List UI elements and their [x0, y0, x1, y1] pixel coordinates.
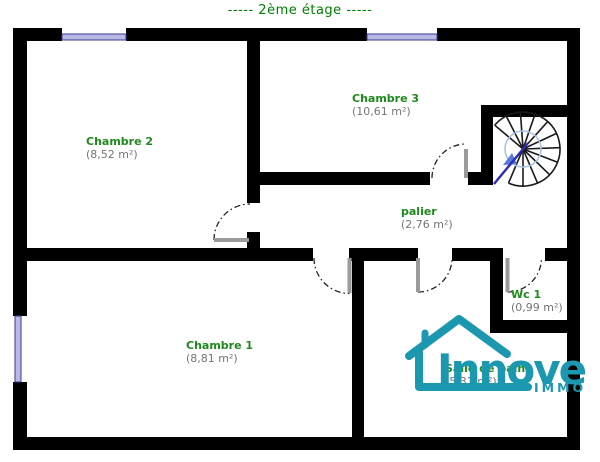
logo-sub-text: IMMO	[534, 380, 586, 395]
wall-corridor-d	[545, 248, 567, 261]
room-name: Chambre 3	[352, 92, 419, 105]
door-arc-sdb	[418, 258, 452, 292]
floor-title: ----- 2ème étage -----	[0, 3, 600, 18]
door-arc-wc	[508, 258, 542, 292]
room-area: (2,76 m²)	[401, 218, 453, 231]
window-chambre3	[367, 34, 437, 40]
wall-top-middle	[126, 28, 367, 41]
wall-corridor-a	[27, 248, 313, 261]
room-label-chambre3: Chambre 3 (10,61 m²)	[352, 92, 419, 118]
wall-bottom	[13, 437, 580, 450]
wall-left-lower	[13, 382, 27, 450]
room-name: Chambre 1	[186, 339, 253, 352]
spiral-staircase	[494, 112, 560, 186]
room-label-chambre2: Chambre 2 (8,52 m²)	[86, 135, 153, 161]
windows	[15, 34, 437, 382]
room-label-palier: palier (2,76 m²)	[401, 205, 453, 231]
room-label-chambre1: Chambre 1 (8,81 m²)	[186, 339, 253, 365]
room-name: palier	[401, 205, 453, 218]
wall-left-upper	[13, 28, 27, 316]
wall-chambre1-divider	[352, 252, 364, 443]
wall-chambre3-bottom-left	[247, 172, 430, 185]
room-area: (10,61 m²)	[352, 105, 419, 118]
window-chambre1	[15, 316, 21, 382]
room-area: (8,52 m²)	[86, 148, 153, 161]
wall-top-right	[437, 28, 580, 41]
logo-graphic: Innove IMMO	[395, 310, 600, 405]
window-chambre2	[62, 34, 126, 40]
door-arc-chambre1	[314, 258, 350, 294]
innove-immo-logo: Innove IMMO	[395, 310, 600, 405]
floorplan-canvas: ----- 2ème étage -----	[0, 0, 600, 462]
room-area: (8,81 m²)	[186, 352, 253, 365]
room-name: Chambre 2	[86, 135, 153, 148]
door-arc-chambre3	[432, 144, 466, 178]
door-arc-chambre2	[214, 204, 250, 240]
room-name: Wc 1	[511, 288, 563, 301]
wall-stair-top	[481, 105, 580, 117]
